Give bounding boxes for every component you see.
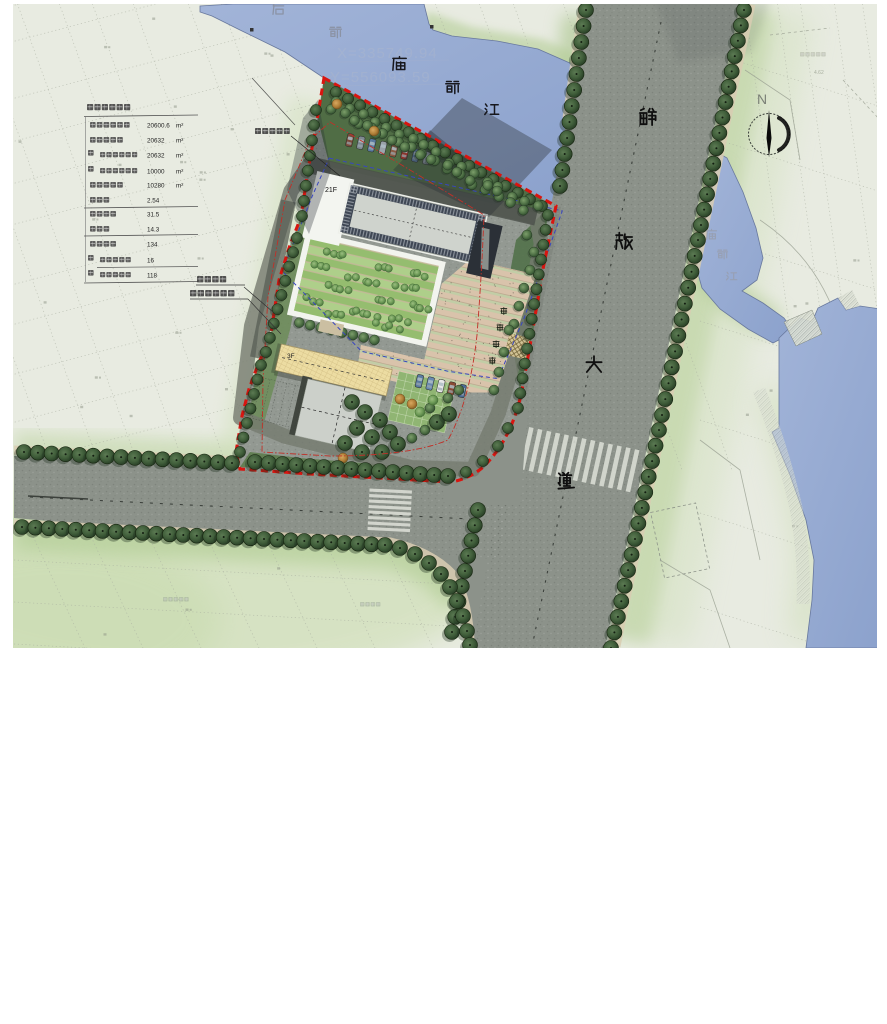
svg-text:m²: m² <box>176 122 183 129</box>
svg-text:m²: m² <box>176 137 183 144</box>
svg-text:m²: m² <box>176 168 183 175</box>
svg-text:20632: 20632 <box>147 137 165 144</box>
svg-text:X=335749.94: X=335749.94 <box>337 45 438 62</box>
svg-text:Y=556093.59: Y=556093.59 <box>330 69 431 86</box>
svg-text:3F: 3F <box>287 353 295 360</box>
svg-text:21F: 21F <box>325 187 337 194</box>
svg-text:14.3: 14.3 <box>147 226 160 233</box>
svg-text:m²: m² <box>176 182 183 189</box>
svg-text:N: N <box>757 91 767 107</box>
svg-text:20632: 20632 <box>147 152 165 159</box>
svg-text:31.5: 31.5 <box>147 211 160 218</box>
svg-text:134: 134 <box>147 241 158 248</box>
svg-text:m²: m² <box>176 152 183 159</box>
svg-text:2.54: 2.54 <box>147 197 160 204</box>
svg-text:16: 16 <box>147 257 155 264</box>
svg-text:4.62: 4.62 <box>814 70 824 76</box>
svg-text:118: 118 <box>147 272 158 279</box>
svg-text:10000: 10000 <box>147 168 165 175</box>
svg-text:10280: 10280 <box>147 182 165 189</box>
svg-text:20600.6: 20600.6 <box>147 122 170 129</box>
